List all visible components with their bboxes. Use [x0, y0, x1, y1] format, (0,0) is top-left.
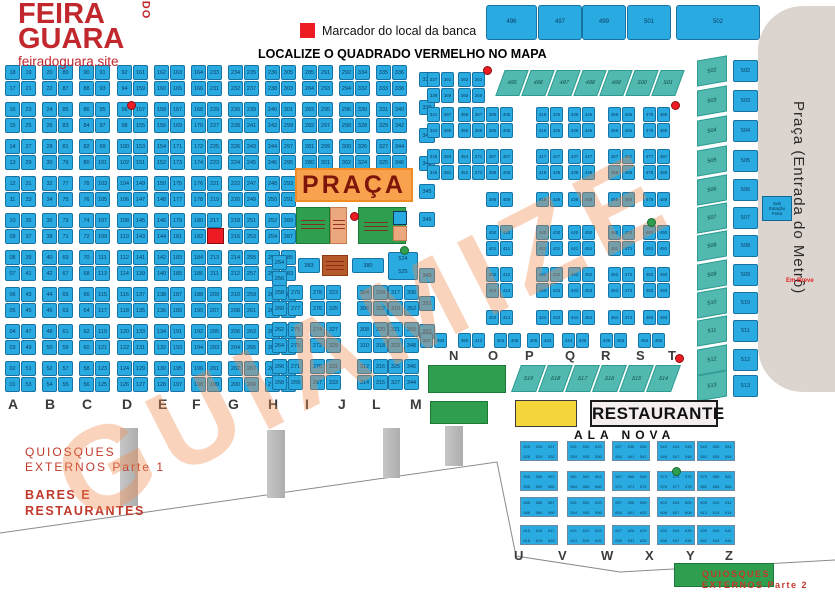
- stall-cell: 253: [244, 229, 259, 244]
- stall-cell: 281: [302, 139, 317, 154]
- stall-cell: 356: [458, 123, 471, 138]
- stall-cell: 31: [21, 176, 36, 191]
- stall-cell: 183: [170, 250, 185, 265]
- stall-cell: 618: [521, 536, 532, 545]
- stall-cell: 472: [622, 267, 635, 282]
- stall-cell: 636: [658, 536, 669, 545]
- stall-cell: 402: [486, 267, 499, 282]
- stall-cell: 446: [600, 333, 613, 348]
- stall-cell: 22: [42, 81, 57, 96]
- stall-cell: 62: [79, 324, 94, 339]
- stall-cell: 445: [576, 333, 589, 348]
- stall-cell: 83: [58, 118, 73, 133]
- stall-cell: 266: [272, 359, 287, 374]
- stall-cell: 95: [95, 102, 110, 117]
- stall-cell: 279: [288, 285, 303, 300]
- stall-location-marker: [207, 228, 224, 244]
- stall-cell: 595: [580, 508, 591, 517]
- stall-cell: 308: [357, 322, 372, 337]
- stall-cell: 487: [657, 149, 670, 164]
- stall-cell: 327: [326, 322, 341, 337]
- stall-cell: 336: [392, 65, 407, 80]
- green-circle-icon: [647, 218, 656, 227]
- stall-cell: 204: [228, 340, 243, 355]
- stall-cell: 544: [670, 442, 681, 451]
- stall-cell: 284: [302, 81, 317, 96]
- stall-cell: 201: [207, 361, 222, 376]
- stall-cell: 643: [710, 536, 721, 545]
- stall-cell: 46: [42, 303, 57, 318]
- row-letter: W: [601, 548, 617, 564]
- ala-nova-block: 639640641642643644: [697, 525, 735, 545]
- stall-cell: 254: [272, 255, 287, 270]
- stall-cell: 429: [550, 192, 563, 207]
- stall-cell: 365: [472, 88, 485, 103]
- stall-cell: 107: [95, 213, 110, 228]
- stall-cell: 405: [500, 107, 513, 122]
- stall-cell: 415: [536, 107, 549, 122]
- stall-cell: 285: [302, 65, 317, 80]
- stall-cell: 252: [265, 213, 280, 228]
- stall-cell: 331: [376, 102, 391, 117]
- stall-cell: 223: [207, 155, 222, 170]
- stall-cell: 146: [154, 213, 169, 228]
- stall-cell: 206: [228, 324, 243, 339]
- praca-block: PRAÇA: [295, 168, 413, 202]
- stall-cell: 559: [533, 482, 544, 491]
- stall-cell: 23: [21, 102, 36, 117]
- stall-cell: 264: [272, 338, 287, 353]
- stall-cell: 436: [568, 123, 581, 138]
- stall-cell: 315: [373, 375, 388, 390]
- stall-cell: 282: [302, 118, 317, 133]
- stall-cell: 492: [657, 267, 670, 282]
- stall-cell: 163: [170, 65, 185, 80]
- stall-cell: 148: [154, 192, 169, 207]
- stall-cell: 262: [272, 322, 287, 337]
- stall-cell: 236: [265, 65, 280, 80]
- stall-cell: 408: [500, 165, 513, 180]
- side-stall: 504: [697, 115, 727, 146]
- stall-cell: 541: [625, 452, 636, 461]
- stall-cell: 416: [536, 123, 549, 138]
- stall-cell: 454: [582, 310, 595, 325]
- stall-cell: 295: [318, 102, 333, 117]
- stall-cell: 599: [638, 498, 649, 507]
- stall-cell: 582: [698, 482, 709, 491]
- stall-cell: 341: [427, 107, 440, 122]
- stall-cell: 587: [546, 498, 557, 507]
- stall-cell: 98: [117, 118, 132, 133]
- stall-cell: 542: [638, 452, 649, 461]
- stall-cell: 400: [486, 225, 499, 240]
- stall-cell: 233: [207, 65, 222, 80]
- stall-cell: 464: [608, 310, 621, 325]
- stall-cell: 426: [550, 123, 563, 138]
- row-letter: X: [645, 548, 661, 564]
- row-letter: H: [268, 397, 284, 413]
- stall-cell: 485: [657, 107, 670, 122]
- top-strip-block: 496: [486, 5, 537, 40]
- stall-cell: 27: [21, 139, 36, 154]
- stall-cell: 170: [191, 118, 206, 133]
- stall-cell: 172: [191, 139, 206, 154]
- map-canvas: Praça (Entrada do Metrô) Em Breve FEIRA …: [0, 0, 835, 600]
- stall-cell: 314: [357, 375, 372, 390]
- stall-cell: 619: [533, 536, 544, 545]
- stall-cell: 244: [265, 139, 280, 154]
- stall-cell: 443: [568, 283, 581, 298]
- ala-nova-block: 609610611612613614: [697, 497, 735, 517]
- stall-cell: 581: [723, 472, 734, 481]
- stall-cell: 380: [352, 258, 384, 273]
- stall-cell: 608: [683, 508, 694, 517]
- stall-cell: 249: [244, 192, 259, 207]
- side-stall: 505: [697, 145, 727, 176]
- stall-cell: 342: [392, 118, 407, 133]
- stall-cell: 624: [568, 536, 579, 545]
- side-stall: 507: [697, 202, 727, 233]
- stall-cell: 346: [427, 165, 440, 180]
- stall-cell: 117: [95, 303, 110, 318]
- stall-cell: 54: [42, 377, 57, 392]
- red-circle-icon: [350, 212, 359, 221]
- stall-cell: 269: [244, 377, 259, 392]
- stall-cell: 324: [373, 285, 388, 300]
- stall-cell: 176: [191, 176, 206, 191]
- stall-cell: 39: [21, 250, 36, 265]
- stall-cell: 340: [392, 102, 407, 117]
- stall-cell: 441: [568, 241, 581, 256]
- stall-cell: 312: [357, 359, 372, 374]
- stall-cell: 444: [568, 310, 581, 325]
- stall-cell: 469: [622, 192, 635, 207]
- stall-cell: 164: [191, 65, 206, 80]
- stall-cell: 224: [228, 155, 243, 170]
- stall-cell: 78: [79, 176, 94, 191]
- stall-cell: 168: [191, 102, 206, 117]
- stall-cell: 460: [608, 225, 621, 240]
- stall-cell: 245: [244, 155, 259, 170]
- stall-cell: 620: [546, 536, 557, 545]
- stall-cell: 440: [568, 225, 581, 240]
- stall-cell: 115: [95, 287, 110, 302]
- stall-cell: 269: [288, 375, 303, 390]
- stall-cell: 70: [79, 250, 94, 265]
- stall-cell: 187: [170, 287, 185, 302]
- stall-cell: 479: [643, 192, 656, 207]
- stall-cell: 350: [404, 322, 419, 337]
- stall-cell: 270: [310, 359, 325, 374]
- stall-cell: 398: [486, 165, 499, 180]
- stall-cell: 143: [133, 229, 148, 244]
- ala-nova-block: 549550551552553554: [697, 441, 735, 461]
- green-block-no: [428, 365, 506, 393]
- stall-cell: 214: [228, 250, 243, 265]
- stall-cell: 540: [613, 452, 624, 461]
- stall-cell: 61: [58, 324, 73, 339]
- stall-cell: 267: [310, 375, 325, 390]
- stall-cell: 638: [683, 536, 694, 545]
- stall-cell: 145: [133, 213, 148, 228]
- stall-cell: 478: [643, 165, 656, 180]
- stall-cell: 177: [170, 192, 185, 207]
- red-circle-icon: [127, 101, 136, 110]
- stall-cell: 36: [42, 213, 57, 228]
- side-stall: 510: [733, 292, 758, 314]
- stall-cell: 152: [154, 155, 169, 170]
- stall-cell: 344: [392, 139, 407, 154]
- stall-cell: 593: [593, 498, 604, 507]
- stall-cell: 327: [376, 139, 391, 154]
- stall-cell: 156: [154, 118, 169, 133]
- side-stall: 513: [697, 370, 727, 401]
- red-circle-icon: [483, 66, 492, 75]
- stall-cell: 576: [658, 482, 669, 491]
- stall-cell: 383: [298, 258, 320, 273]
- stall-cell: 74: [79, 213, 94, 228]
- stall-cell: 446: [582, 123, 595, 138]
- stall-cell: 442: [568, 267, 581, 282]
- row-letter: S: [636, 348, 652, 364]
- side-stall: 503: [733, 90, 758, 112]
- stall-cell: 461: [608, 241, 621, 256]
- stall-cell: 329: [326, 338, 341, 353]
- stall-cell: 230: [228, 102, 243, 117]
- side-stall: 502: [697, 55, 727, 86]
- stall-cell: 393: [434, 333, 447, 348]
- row-letter: P: [525, 348, 541, 364]
- side-stall: 507: [733, 207, 758, 229]
- ala-nova-block: 597598599600601602: [612, 497, 650, 517]
- stall-cell: 118: [117, 303, 132, 318]
- stall-cell: 367: [472, 107, 485, 122]
- stall-cell: 349: [419, 268, 435, 283]
- stall-cell: 635: [683, 526, 694, 535]
- stall-cell: 352: [458, 165, 471, 180]
- stall-cell: 114: [117, 266, 132, 281]
- stall-cell: 158: [154, 102, 169, 117]
- stall-cell: 424: [536, 310, 549, 325]
- stall-cell: 345: [427, 149, 440, 164]
- stall-cell: 181: [170, 229, 185, 244]
- stall-cell: 568: [625, 472, 636, 481]
- stall-cell: 548: [683, 452, 694, 461]
- side-stall: 509: [733, 264, 758, 286]
- logo-word2: DO: [139, 1, 151, 20]
- stall-cell: 339: [427, 88, 440, 103]
- stall-cell: 66: [79, 287, 94, 302]
- stall-cell: 126: [117, 377, 132, 392]
- stall-cell: 598: [625, 498, 636, 507]
- stall-cell: 480: [643, 225, 656, 240]
- stall-cell: 622: [580, 526, 591, 535]
- green-block-m: [430, 401, 488, 424]
- stall-cell: 241: [244, 118, 259, 133]
- stall-cell: 326: [355, 139, 370, 154]
- stall-cell: 381: [441, 165, 454, 180]
- stall-cell: 335: [376, 65, 391, 80]
- stall-cell: 447: [582, 149, 595, 164]
- stall-cell: 547: [670, 452, 681, 461]
- ala-nova-block: 633634635636637638: [657, 525, 695, 545]
- stall-cell: 222: [228, 176, 243, 191]
- sub-estacao-block: SubEstaçãoFeira: [762, 196, 792, 221]
- stall-cell: 387: [441, 107, 454, 122]
- stall-cell: 232: [228, 81, 243, 96]
- stall-cell: 139: [133, 266, 148, 281]
- stall-cell: 237: [244, 81, 259, 96]
- red-circle-icon: [671, 101, 680, 110]
- stall-cell: 287: [281, 229, 296, 244]
- stall-cell: 295: [281, 155, 296, 170]
- stall-cell: 300: [339, 139, 354, 154]
- stall-cell: 76: [79, 192, 94, 207]
- stall-cell: 207: [207, 303, 222, 318]
- stall-cell: 318: [373, 338, 388, 353]
- stall-cell: 263: [244, 324, 259, 339]
- stall-cell: 256: [272, 271, 287, 286]
- side-stall: 509: [697, 259, 727, 290]
- stall-cell: 418: [536, 165, 549, 180]
- row-letter: M: [410, 397, 426, 413]
- stall-cell: 323: [326, 285, 341, 300]
- stall-cell: 419: [536, 192, 549, 207]
- stall-cell: 430: [550, 225, 563, 240]
- site-link[interactable]: feiradoguara.site: [18, 54, 124, 69]
- stall-cell: 383: [441, 149, 454, 164]
- stall-cell: 457: [608, 149, 621, 164]
- stall-cell: 135: [133, 303, 148, 318]
- stall-cell: 431: [550, 241, 563, 256]
- stall-cell: 494: [657, 310, 670, 325]
- quiosques2-label: QUIOSQUESEXTERNOS Parte 2: [702, 569, 808, 592]
- stall-cell: 306: [404, 285, 419, 300]
- row-letter: U: [514, 548, 530, 564]
- side-stall: 510: [697, 287, 727, 318]
- stall-cell: 535: [580, 452, 591, 461]
- stall-cell: 226: [228, 139, 243, 154]
- stall-cell: 594: [568, 508, 579, 517]
- stall-cell: 395: [486, 107, 499, 122]
- stall-cell: 07: [5, 266, 20, 281]
- stall-cell: 11: [5, 192, 20, 207]
- stall-cell: 278: [310, 285, 325, 300]
- stall-cell: 413: [500, 283, 513, 298]
- stall-cell: 413: [472, 333, 485, 348]
- stall-cell: 178: [191, 192, 206, 207]
- legend-marker-icon: [300, 23, 315, 38]
- stall-cell: 257: [244, 266, 259, 281]
- stall-cell: 246: [265, 155, 280, 170]
- stall-cell: 292: [339, 65, 354, 80]
- stall-cell: 84: [79, 118, 94, 133]
- stall-cell: 414: [500, 310, 513, 325]
- stall-cell: 565: [580, 482, 591, 491]
- stall-cell: 493: [657, 283, 670, 298]
- stall-cell: 228: [228, 118, 243, 133]
- stall-cell: 477: [643, 149, 656, 164]
- stall-cell: 08: [5, 250, 20, 265]
- stall-cell: 407: [500, 149, 513, 164]
- stall-cell: 615: [521, 526, 532, 535]
- stall-cell: 561: [568, 472, 579, 481]
- stall-cell: 463: [608, 283, 621, 298]
- side-stall: 511: [697, 315, 727, 346]
- stall-cell: 423: [536, 283, 549, 298]
- stall-cell: 306: [357, 301, 372, 316]
- stall-cell: 471: [622, 241, 635, 256]
- stall-cell: 14: [5, 139, 20, 154]
- stall-cell: 60: [79, 340, 94, 355]
- side-stall: 508: [697, 230, 727, 261]
- stall-cell: 203: [207, 340, 222, 355]
- stall-cell: 578: [683, 482, 694, 491]
- stall-cell: 333: [326, 375, 341, 390]
- stall-cell: 524525: [388, 252, 418, 280]
- stall-cell: 360: [458, 333, 471, 348]
- stall-cell: 333: [376, 81, 391, 96]
- stall-cell: 127: [133, 377, 148, 392]
- stall-cell: 171: [170, 139, 185, 154]
- stall-cell: 567: [613, 472, 624, 481]
- stall-cell: 592: [580, 498, 591, 507]
- stall-cell: 491: [657, 241, 670, 256]
- stall-cell: 449: [582, 192, 595, 207]
- stall-cell: 303: [281, 81, 296, 96]
- stall-cell: 167: [170, 102, 185, 117]
- stall-cell: 144: [154, 229, 169, 244]
- stall-cell: 25: [21, 118, 36, 133]
- stall-cell: 644: [723, 536, 734, 545]
- stall-cell: 465: [622, 107, 635, 122]
- stall-cell: 231: [207, 81, 222, 96]
- stall-cell: 617: [546, 526, 557, 535]
- stall-cell: 639: [698, 526, 709, 535]
- stall-cell: 611: [723, 498, 734, 507]
- stall-cell: 71: [58, 229, 73, 244]
- stall-cell: 597: [613, 498, 624, 507]
- stall-cell: 75: [58, 192, 73, 207]
- stall-cell: 484: [643, 310, 656, 325]
- ala-nova-block: 525526527528529530: [520, 441, 558, 461]
- stall-cell: 67: [58, 266, 73, 281]
- stall-cell: 251: [244, 213, 259, 228]
- stall-cell: 385: [441, 123, 454, 138]
- stall-cell: 123: [95, 361, 110, 376]
- stall-cell: 221: [207, 176, 222, 191]
- stall-cell: 488: [657, 165, 670, 180]
- side-stall: 511: [733, 320, 758, 342]
- stall-cell: 80: [79, 155, 94, 170]
- stall-cell: 121: [95, 340, 110, 355]
- stall-cell: 185: [170, 266, 185, 281]
- stall-cell: 358: [458, 107, 471, 122]
- stall-cell: 296: [339, 102, 354, 117]
- stall-cell: 401: [486, 241, 499, 256]
- stall-cell: 273: [288, 338, 303, 353]
- stall-cell: 538: [625, 442, 636, 451]
- stall-cell: 604: [670, 498, 681, 507]
- stall-cell: 320: [373, 322, 388, 337]
- stall-cell: 227: [207, 118, 222, 133]
- stall-cell: 351: [419, 296, 435, 311]
- stall-cell: 316: [373, 359, 388, 374]
- stall-cell: 94: [117, 81, 132, 96]
- stall-cell: 363: [472, 72, 485, 87]
- stall-cell: 585: [521, 498, 532, 507]
- stall-cell: 116: [117, 287, 132, 302]
